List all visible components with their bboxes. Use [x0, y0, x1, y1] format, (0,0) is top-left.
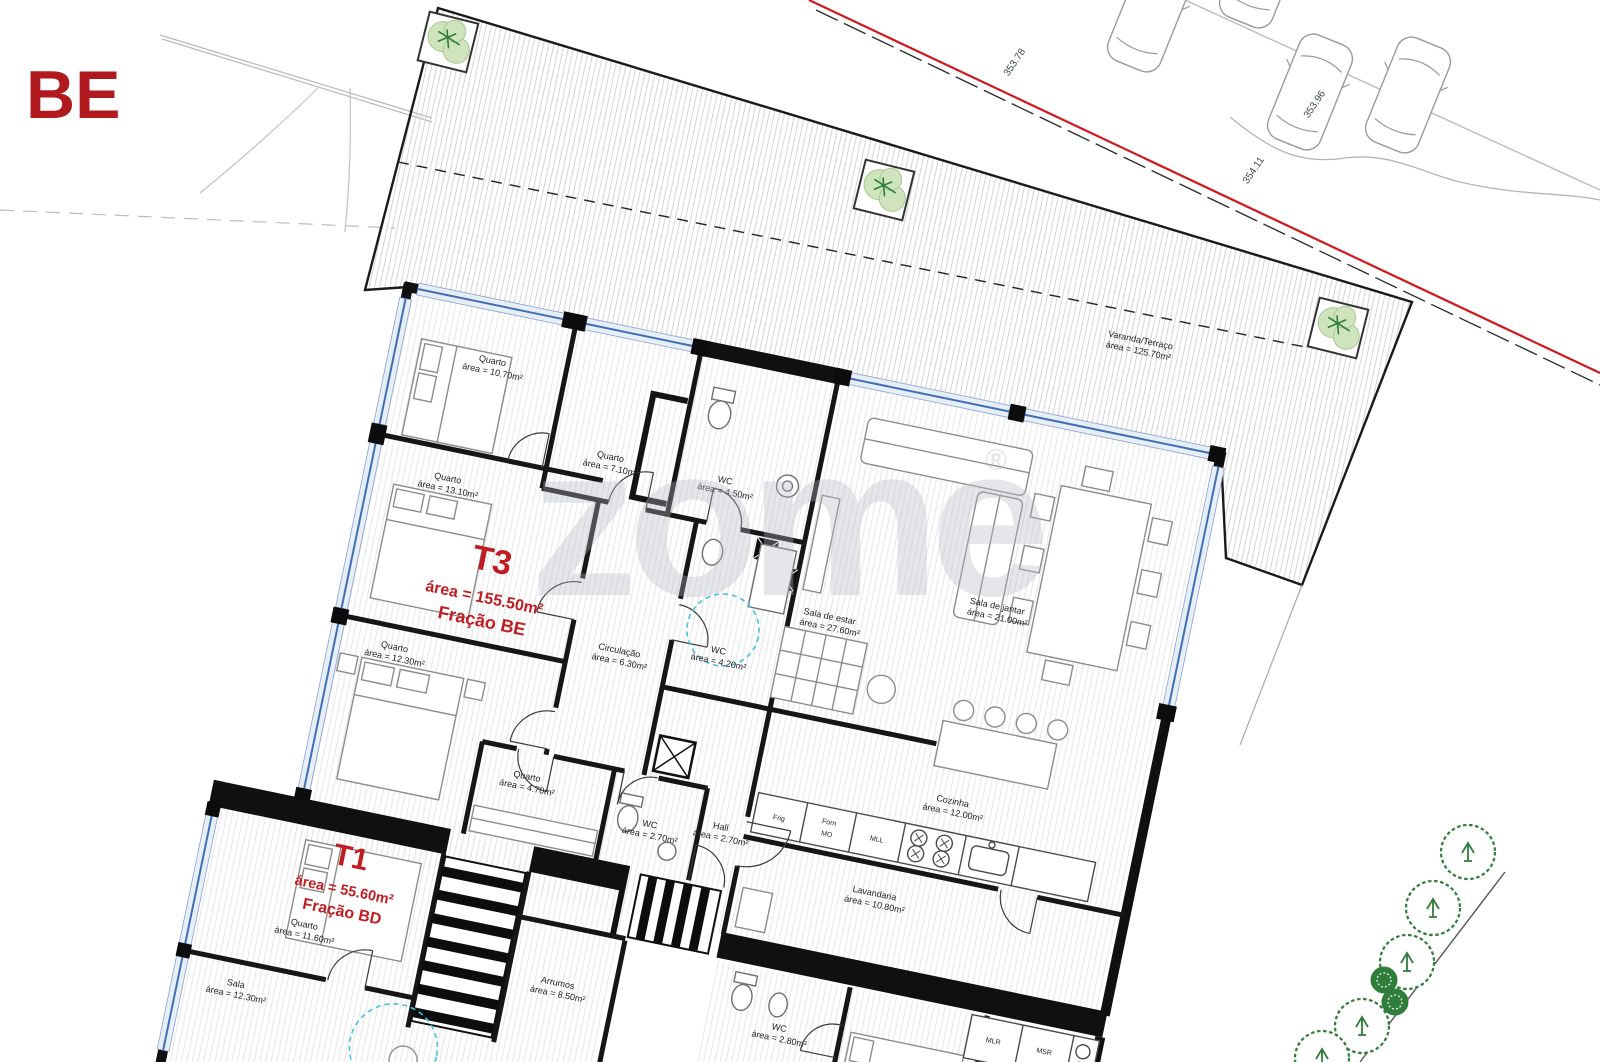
tree-row	[1295, 825, 1505, 1062]
floor-plan-drawing: 353.78 353.96 354.11 Varanda/Terraço áre…	[0, 0, 1600, 1062]
tree-icon	[1441, 825, 1495, 879]
car-icon	[1209, 0, 1314, 35]
parcel-edge	[1240, 585, 1302, 745]
elevation-label: 353.78	[1002, 46, 1028, 78]
car-icon	[1355, 30, 1460, 159]
car-icon	[1257, 27, 1362, 156]
shrub-icon	[1382, 989, 1408, 1015]
planter-tree-icon	[854, 160, 915, 221]
planter-tree-icon	[418, 12, 479, 73]
sheet-corner-label: BE	[26, 57, 120, 133]
watermark-registered-icon: ®	[985, 444, 1007, 477]
floor-plan-page: 353.78 353.96 354.11 Varanda/Terraço áre…	[0, 0, 1600, 1062]
tree-icon	[1406, 881, 1460, 935]
car-icon	[1097, 0, 1202, 79]
planter-tree-icon	[1308, 298, 1369, 359]
watermark: zome ®	[530, 400, 1043, 641]
elevation-label: 354.11	[1241, 155, 1267, 186]
watermark-text: zome	[530, 400, 1043, 641]
